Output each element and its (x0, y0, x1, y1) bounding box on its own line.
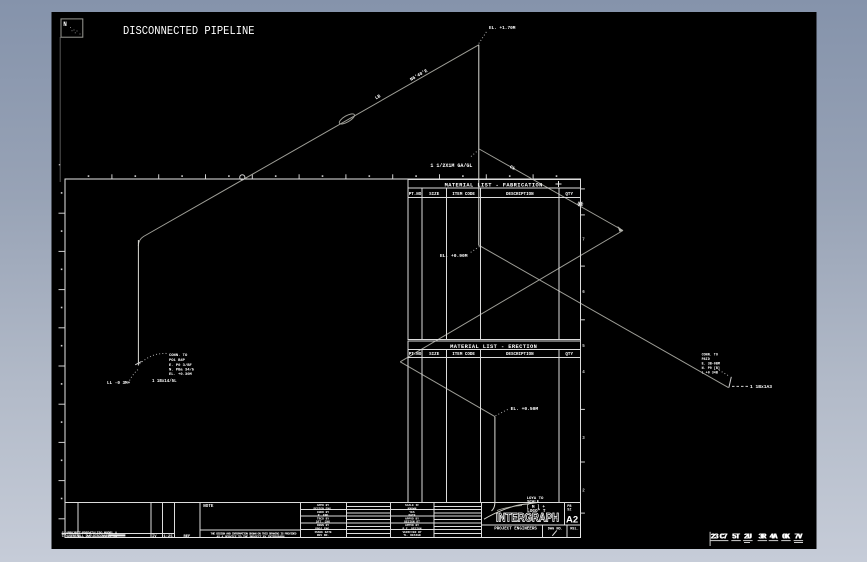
svg-text:PROJECT ENGINEERS: PROJECT ENGINEERS (494, 527, 537, 531)
svg-text:NOTE: NOTE (203, 505, 214, 509)
svg-text:1 1/2X1M GA/GL: 1 1/2X1M GA/GL (430, 163, 472, 169)
svg-text:DISCONNECTED PIPELINE: DISCONNECTED PIPELINE (123, 24, 255, 38)
svg-text:SIZE: SIZE (429, 193, 440, 197)
svg-text:EL. +0.50M: EL. +0.50M (511, 406, 539, 412)
svg-text:PROJ ENG.: PROJ ENG. (315, 527, 331, 530)
svg-text:DESCRIPTION: DESCRIPTION (506, 193, 534, 197)
svg-text:TL. DESIGN: TL. DESIGN (403, 534, 421, 537)
svg-text:DWG NO.: DWG NO. (548, 528, 563, 532)
svg-text:ITEM CODE: ITEM CODE (452, 353, 475, 357)
svg-text:REF: REF (184, 535, 192, 539)
svg-text:IV: IV (152, 535, 157, 539)
svg-text:EL. +1.70M: EL. +1.70M (489, 26, 516, 31)
svg-text:MATERIAL LIST - FABRICATION: MATERIAL LIST - FABRICATION (445, 183, 543, 189)
svg-text:INTERGRAPH: INTERGRAPH (496, 512, 559, 524)
svg-text:P&ID: P&ID (702, 358, 710, 362)
svg-text:N. PBa 34/5: N. PBa 34/5 (169, 367, 195, 372)
svg-text:AS A SERVICE TO THE PROJECT BY: AS A SERVICE TO THE PROJECT BY INTERGRAP… (217, 534, 285, 538)
svg-text:REL.: REL. (570, 528, 579, 532)
svg-text:LL -0 3M+: LL -0 3M+ (107, 381, 131, 386)
svg-text:PT.NO: PT.NO (409, 353, 422, 357)
svg-text:N: N (63, 21, 67, 28)
svg-text:PO1 B4P: PO1 B4P (169, 359, 186, 363)
svg-text:P.E. DESIGN: P.E. DESIGN (402, 527, 421, 530)
svg-text:1:25: 1:25 (164, 535, 174, 539)
svg-text:N. P0 [B]: N. P0 [B] (702, 366, 720, 371)
svg-text:CONN. TO: CONN. TO (702, 353, 718, 357)
svg-text:SZ: SZ (567, 509, 571, 513)
svg-text:E. 3B-0BM: E. 3B-0BM (702, 362, 720, 366)
svg-text:L +0 34B: L +0 34B (702, 371, 718, 375)
svg-text:A2: A2 (566, 515, 578, 526)
svg-text:SIZE: SIZE (429, 353, 440, 357)
svg-text:E. P0 3/BF: E. P0 3/BF (169, 363, 193, 368)
svg-text:EL. +0.90M: EL. +0.90M (440, 253, 468, 259)
svg-text:1 1Bx1A3: 1 1Bx1A3 (750, 384, 772, 390)
svg-text:QTY: QTY (565, 353, 573, 357)
svg-text:PT.NO: PT.NO (409, 193, 422, 197)
svg-text:EL. +0.30M: EL. +0.30M (169, 373, 193, 377)
svg-text:1 1Bx14/5L: 1 1Bx14/5L (152, 379, 177, 384)
svg-text:ITEM CODE: ITEM CODE (452, 193, 475, 197)
svg-text:DESCRIPTION: DESCRIPTION (506, 353, 534, 357)
svg-text:CONN. TO: CONN. TO (169, 354, 188, 358)
svg-text:MATERIAL LIST - ERECTION: MATERIAL LIST - ERECTION (450, 344, 537, 350)
svg-text:QTY: QTY (565, 193, 573, 197)
svg-text:REV NO.: REV NO. (317, 534, 329, 537)
